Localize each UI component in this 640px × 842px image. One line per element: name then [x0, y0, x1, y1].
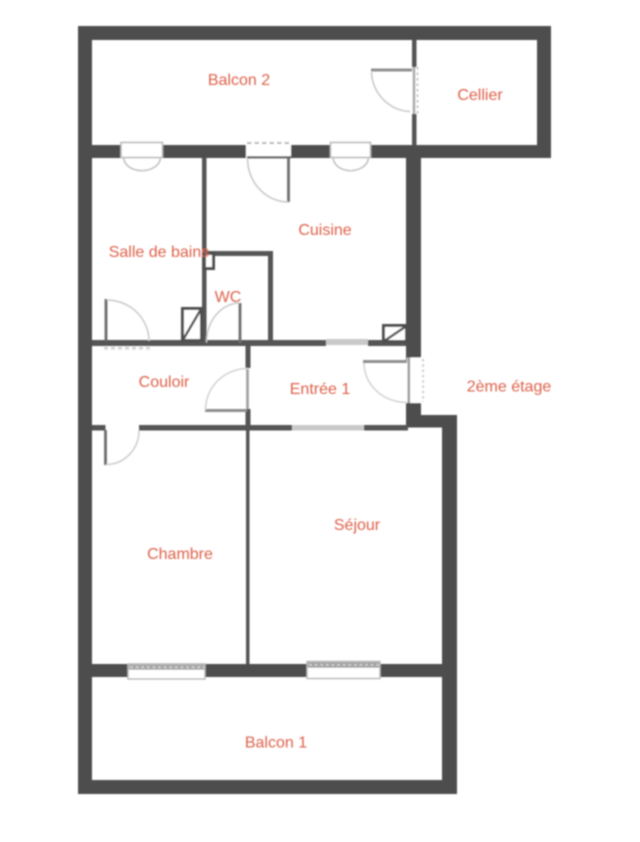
svg-text:Entrée 1: Entrée 1 — [290, 381, 351, 398]
svg-text:Balcon 2: Balcon 2 — [208, 72, 270, 89]
svg-text:Salle de bains: Salle de bains — [109, 244, 210, 261]
svg-text:Cellier: Cellier — [457, 87, 503, 104]
svg-text:Cuisine: Cuisine — [298, 222, 351, 239]
svg-text:Chambre: Chambre — [147, 546, 213, 563]
svg-text:2ème étage: 2ème étage — [467, 379, 552, 396]
svg-text:WC: WC — [215, 289, 242, 306]
svg-text:Balcon 1: Balcon 1 — [245, 735, 307, 752]
svg-text:Couloir: Couloir — [139, 374, 190, 391]
svg-text:Séjour: Séjour — [334, 517, 381, 534]
